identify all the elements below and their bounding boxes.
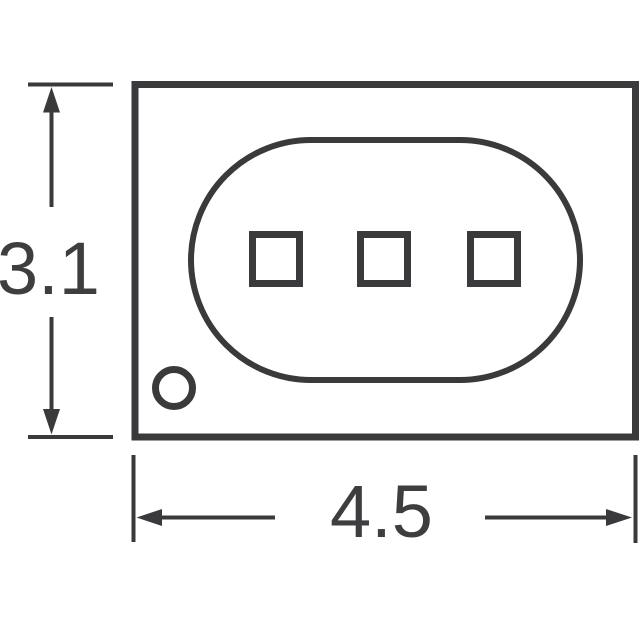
chip-pad-square-center [361,235,408,284]
chip-pad-square-left [253,235,300,284]
package-dimension-drawing: 3.1 4.5 [0,0,640,640]
height-dimension: 3.1 [0,85,113,438]
width-dimension-label: 4.5 [330,470,433,553]
width-dimension: 4.5 [134,455,636,553]
height-dimension-label: 3.1 [0,227,100,310]
drawing-canvas: 3.1 4.5 [0,0,640,640]
arrowhead-right-icon [606,509,632,526]
arrowhead-down-icon [43,409,60,435]
chip-pad-square-right [471,235,518,284]
polarity-marker-circle [156,370,193,407]
